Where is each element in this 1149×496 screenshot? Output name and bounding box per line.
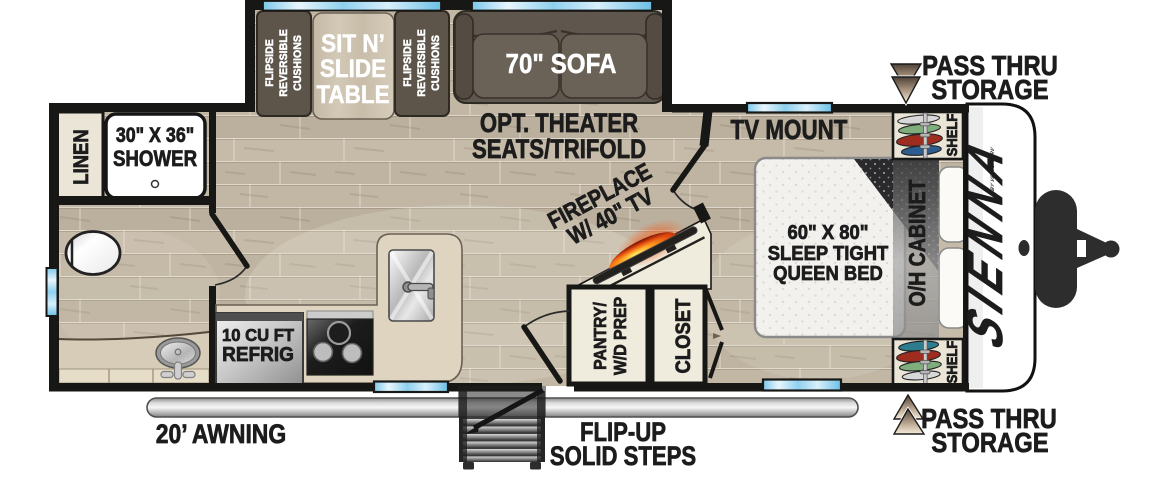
svg-text:SOLID STEPS: SOLID STEPS <box>550 442 696 472</box>
svg-text:CUSHIONS: CUSHIONS <box>430 35 442 91</box>
svg-text:BY VENTURE RV: BY VENTURE RV <box>990 146 996 192</box>
svg-text:SIENNA: SIENNA <box>957 123 1013 357</box>
svg-text:FLIPSIDE: FLIPSIDE <box>264 39 276 87</box>
svg-text:REFRIG: REFRIG <box>222 344 294 367</box>
svg-text:20’ AWNING: 20’ AWNING <box>156 419 286 449</box>
svg-text:CLOSET: CLOSET <box>672 299 695 374</box>
svg-text:SEATS/TRIFOLD: SEATS/TRIFOLD <box>472 135 646 165</box>
svg-text:CUSHIONS: CUSHIONS <box>292 35 304 91</box>
svg-text:SHELF: SHELF <box>944 341 960 384</box>
svg-text:REVERSIBLE: REVERSIBLE <box>416 29 428 97</box>
svg-text:LINEN: LINEN <box>70 129 93 184</box>
svg-text:70" SOFA: 70" SOFA <box>506 50 617 80</box>
svg-text:TV MOUNT: TV MOUNT <box>731 115 848 146</box>
svg-text:STORAGE: STORAGE <box>931 426 1048 458</box>
svg-text:60" X 80": 60" X 80" <box>787 221 868 244</box>
svg-text:FLIPSIDE: FLIPSIDE <box>402 39 414 87</box>
svg-text:SHOWER: SHOWER <box>113 148 197 172</box>
svg-text:REVERSIBLE: REVERSIBLE <box>278 29 290 97</box>
svg-text:STORAGE: STORAGE <box>931 73 1048 105</box>
svg-text:QUEEN BED: QUEEN BED <box>773 262 883 285</box>
svg-text:O/H CABINET: O/H CABINET <box>905 180 931 307</box>
svg-text:TABLE: TABLE <box>316 81 389 109</box>
svg-text:10 CU FT: 10 CU FT <box>222 326 295 345</box>
svg-text:SLIDE: SLIDE <box>320 55 386 83</box>
svg-text:W/D PREP: W/D PREP <box>610 297 630 375</box>
svg-text:30" X 36": 30" X 36" <box>116 124 194 148</box>
svg-text:PANTRY/: PANTRY/ <box>590 302 610 370</box>
